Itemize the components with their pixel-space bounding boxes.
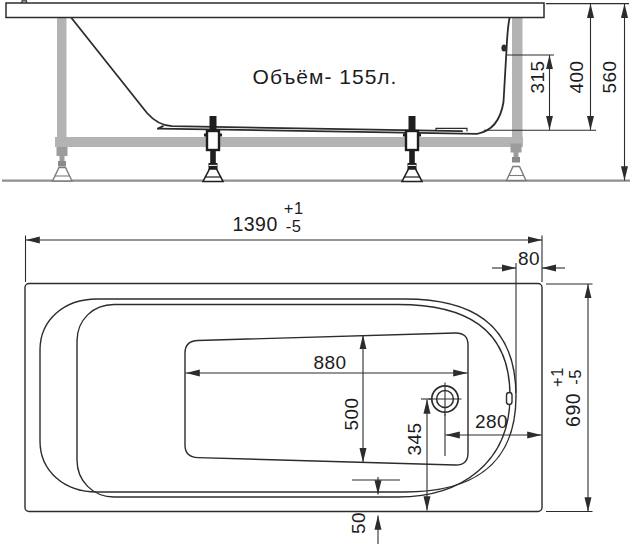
dim-tub-height-label: 400 <box>567 60 586 93</box>
volume-label: Объём- 155л. <box>253 66 398 87</box>
dim-bottom-length-label: 880 <box>313 352 346 371</box>
dim-rim-offset-label: 80 <box>518 248 540 267</box>
bathtub-technical-drawing: Объём- 155л. 315 400 560 1390 +1 -5 80 8… <box>0 0 630 548</box>
leg-middle-left <box>203 116 223 182</box>
dim-length-label: 1390 +1 -5 <box>232 200 303 234</box>
dim-apron-gap-label: 50 <box>348 511 367 533</box>
dim-width-tol-minus: -5 <box>566 369 583 385</box>
dim-width-label: 690 +1 -5 <box>549 367 583 427</box>
dim-overflow-height-label: 315 <box>528 60 547 93</box>
dim-length-tol-minus: -5 <box>286 218 302 235</box>
dim-length-tol-plus: +1 <box>284 200 304 217</box>
dim-bottom-width-label: 500 <box>341 397 360 430</box>
dim-drain-offset-long-label: 345 <box>404 422 423 455</box>
leg-outer-right <box>507 144 527 181</box>
overflow-slot <box>507 393 513 405</box>
tub-rim-profile <box>6 1 544 18</box>
plan-outer-rim <box>25 284 542 512</box>
dim-drain-offset-short-label: 280 <box>475 412 508 431</box>
leg-outer-left <box>53 147 73 181</box>
dim-width-value: 690 <box>563 392 583 426</box>
leg-middle-right <box>402 116 422 182</box>
dim-width-tol-plus: +1 <box>549 367 566 387</box>
side-view-drawing <box>0 0 630 190</box>
dim-total-height-label: 560 <box>600 60 619 93</box>
overflow-marker <box>501 44 506 51</box>
dim-length-value: 1390 <box>232 215 277 235</box>
